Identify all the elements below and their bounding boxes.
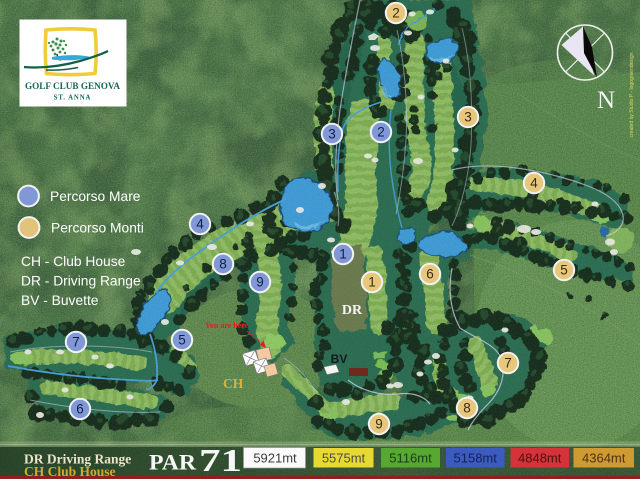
- svg-text:4: 4: [530, 176, 538, 191]
- svg-text:5116mt: 5116mt: [389, 451, 432, 466]
- svg-text:5575mt: 5575mt: [322, 451, 366, 466]
- svg-text:5: 5: [560, 263, 568, 278]
- svg-text:3: 3: [464, 110, 472, 125]
- svg-text:PAR: PAR: [149, 450, 197, 475]
- svg-text:5158mt: 5158mt: [454, 451, 498, 466]
- svg-text:BV: BV: [331, 352, 348, 366]
- svg-text:4848mt: 4848mt: [518, 451, 562, 466]
- svg-text:GOLF CLUB GENOVA: GOLF CLUB GENOVA: [25, 81, 120, 92]
- svg-text:4: 4: [196, 217, 204, 232]
- svg-text:8: 8: [219, 257, 227, 272]
- svg-text:N: N: [597, 87, 615, 114]
- svg-text:9: 9: [256, 275, 264, 290]
- svg-text:5921mt: 5921mt: [253, 451, 297, 466]
- svg-text:1: 1: [368, 275, 376, 290]
- svg-text:BV - Buvette: BV - Buvette: [21, 293, 99, 308]
- svg-text:created by Studio P - logogree: created by Studio P - logogreendesign: [629, 52, 635, 137]
- svg-text:ST. ANNA: ST. ANNA: [54, 95, 92, 102]
- svg-text:2: 2: [377, 125, 385, 140]
- svg-text:2: 2: [392, 6, 400, 21]
- svg-text:1: 1: [339, 247, 347, 262]
- svg-text:Percorso Mare: Percorso Mare: [50, 189, 141, 204]
- svg-text:8: 8: [463, 401, 471, 416]
- svg-text:9: 9: [375, 417, 383, 432]
- svg-text:DR: DR: [342, 303, 363, 318]
- svg-text:7: 7: [72, 335, 80, 350]
- svg-text:CH - Club House: CH - Club House: [21, 254, 126, 269]
- svg-text:You are here: You are here: [205, 321, 249, 330]
- svg-text:71: 71: [199, 442, 242, 478]
- svg-text:CH: CH: [223, 376, 244, 391]
- svg-text:6: 6: [426, 267, 434, 282]
- svg-text:CH Club House: CH Club House: [24, 464, 116, 479]
- svg-text:DR - Driving Range: DR - Driving Range: [21, 274, 141, 289]
- svg-text:4364mt: 4364mt: [582, 451, 626, 466]
- svg-text:Percorso Monti: Percorso Monti: [51, 221, 144, 236]
- svg-text:7: 7: [504, 356, 512, 371]
- svg-text:6: 6: [76, 402, 84, 417]
- svg-text:5: 5: [178, 333, 186, 348]
- svg-text:3: 3: [328, 127, 336, 142]
